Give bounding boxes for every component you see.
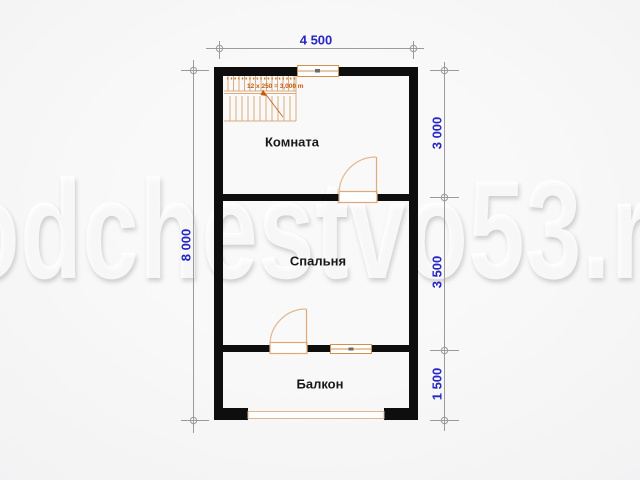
room-label-komnata: Комната — [265, 135, 319, 150]
staircase — [224, 74, 296, 121]
stairs-annotation: 12 x 250 = 3,000 m — [247, 83, 304, 90]
floor-plan-drawing — [0, 0, 640, 480]
dimension-width-total: 4 500 — [300, 33, 333, 48]
door-bedroom — [270, 309, 307, 354]
balcony-railing — [248, 412, 384, 419]
window-top-wall — [298, 66, 339, 77]
dimension-height-total: 8 000 — [179, 229, 194, 262]
dimension-segment-room: 3 000 — [430, 117, 445, 150]
window-bedroom-wall — [331, 345, 372, 354]
room-label-spalnya: Спальня — [290, 254, 346, 269]
floor-plan-image: odchestvo53.r — [0, 0, 640, 480]
walls — [214, 67, 418, 420]
room-label-balkon: Балкон — [297, 377, 344, 392]
dimension-segment-balcony: 1 500 — [430, 368, 445, 401]
dimension-segment-bedroom: 3 500 — [430, 256, 445, 289]
door-room — [339, 157, 377, 203]
